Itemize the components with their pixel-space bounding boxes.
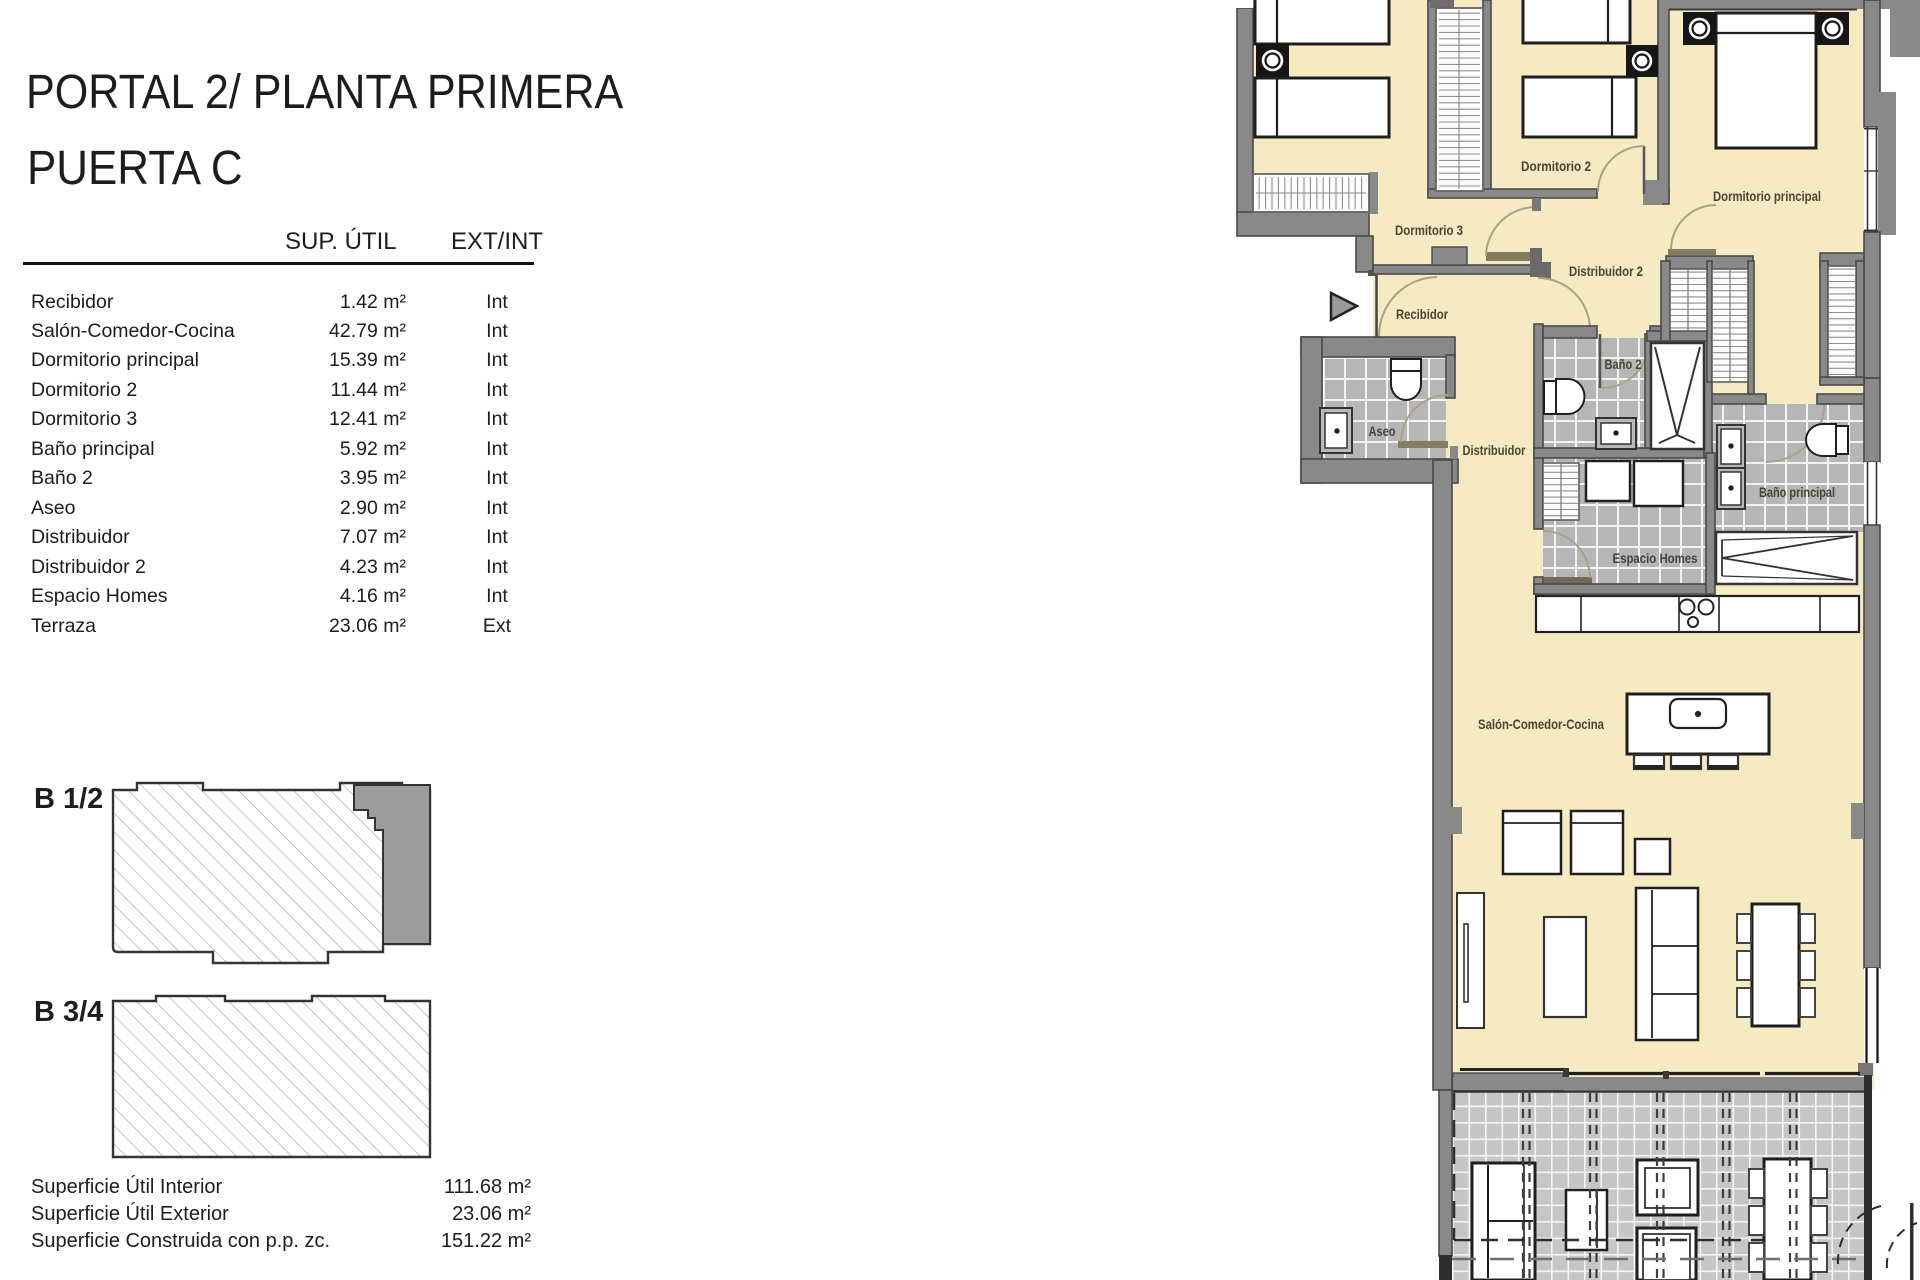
svg-text:Dormitorio principal: Dormitorio principal: [1713, 188, 1821, 204]
svg-text:Espacio Homes: Espacio Homes: [1613, 550, 1698, 566]
svg-text:Distribuidor 2: Distribuidor 2: [1569, 263, 1643, 279]
svg-text:Aseo: Aseo: [1369, 423, 1396, 439]
svg-text:Baño 2: Baño 2: [1605, 356, 1642, 372]
svg-text:Baño principal: Baño principal: [1759, 484, 1835, 500]
svg-text:Recibidor: Recibidor: [1396, 306, 1448, 322]
svg-text:Salón-Comedor-Cocina: Salón-Comedor-Cocina: [1478, 716, 1604, 732]
svg-text:Dormitorio 2: Dormitorio 2: [1521, 158, 1591, 174]
svg-text:Distribuidor: Distribuidor: [1463, 442, 1526, 458]
svg-text:Dormitorio 3: Dormitorio 3: [1395, 222, 1463, 238]
